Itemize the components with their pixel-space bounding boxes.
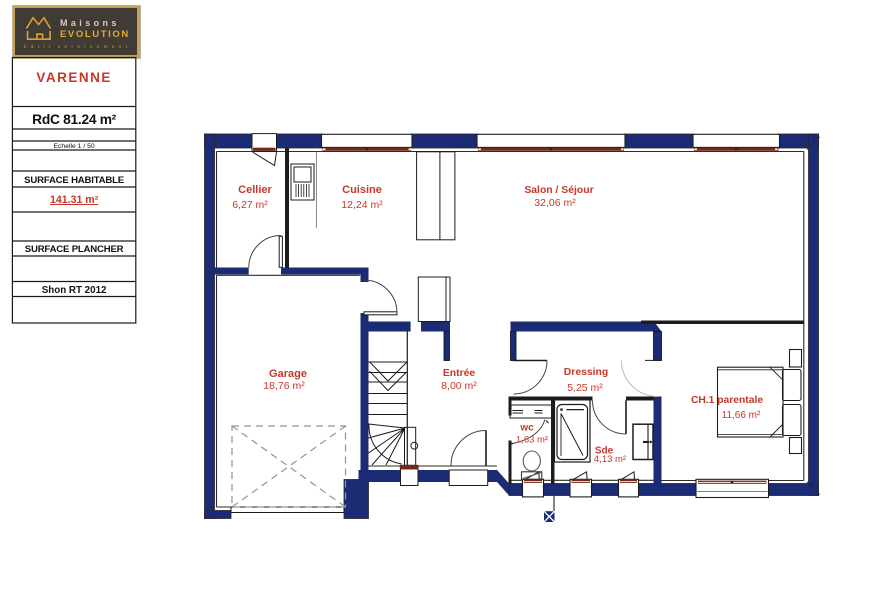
svg-text:32,06 m²: 32,06 m² <box>534 197 576 209</box>
svg-text:6,27 m²: 6,27 m² <box>232 199 268 211</box>
svg-text:Entrée: Entrée <box>443 368 476 379</box>
svg-text:Salon / Séjour: Salon / Séjour <box>524 185 593 196</box>
svg-text:Cuisine: Cuisine <box>342 184 382 196</box>
svg-text:5,25 m²: 5,25 m² <box>567 382 603 394</box>
svg-text:8,00 m²: 8,00 m² <box>441 380 477 392</box>
svg-text:1,63 m²: 1,63 m² <box>516 435 548 446</box>
svg-text:CH.1 parentale: CH.1 parentale <box>691 395 763 406</box>
svg-text:Garage: Garage <box>269 368 307 380</box>
svg-text:12,24 m²: 12,24 m² <box>341 199 383 211</box>
svg-text:Cellier: Cellier <box>238 184 272 196</box>
svg-text:Dressing: Dressing <box>564 367 608 378</box>
svg-text:4,13 m²: 4,13 m² <box>594 454 626 465</box>
svg-text:11,66 m²: 11,66 m² <box>722 410 761 421</box>
svg-text:18,76 m²: 18,76 m² <box>263 380 305 392</box>
svg-text:wc: wc <box>519 423 534 434</box>
